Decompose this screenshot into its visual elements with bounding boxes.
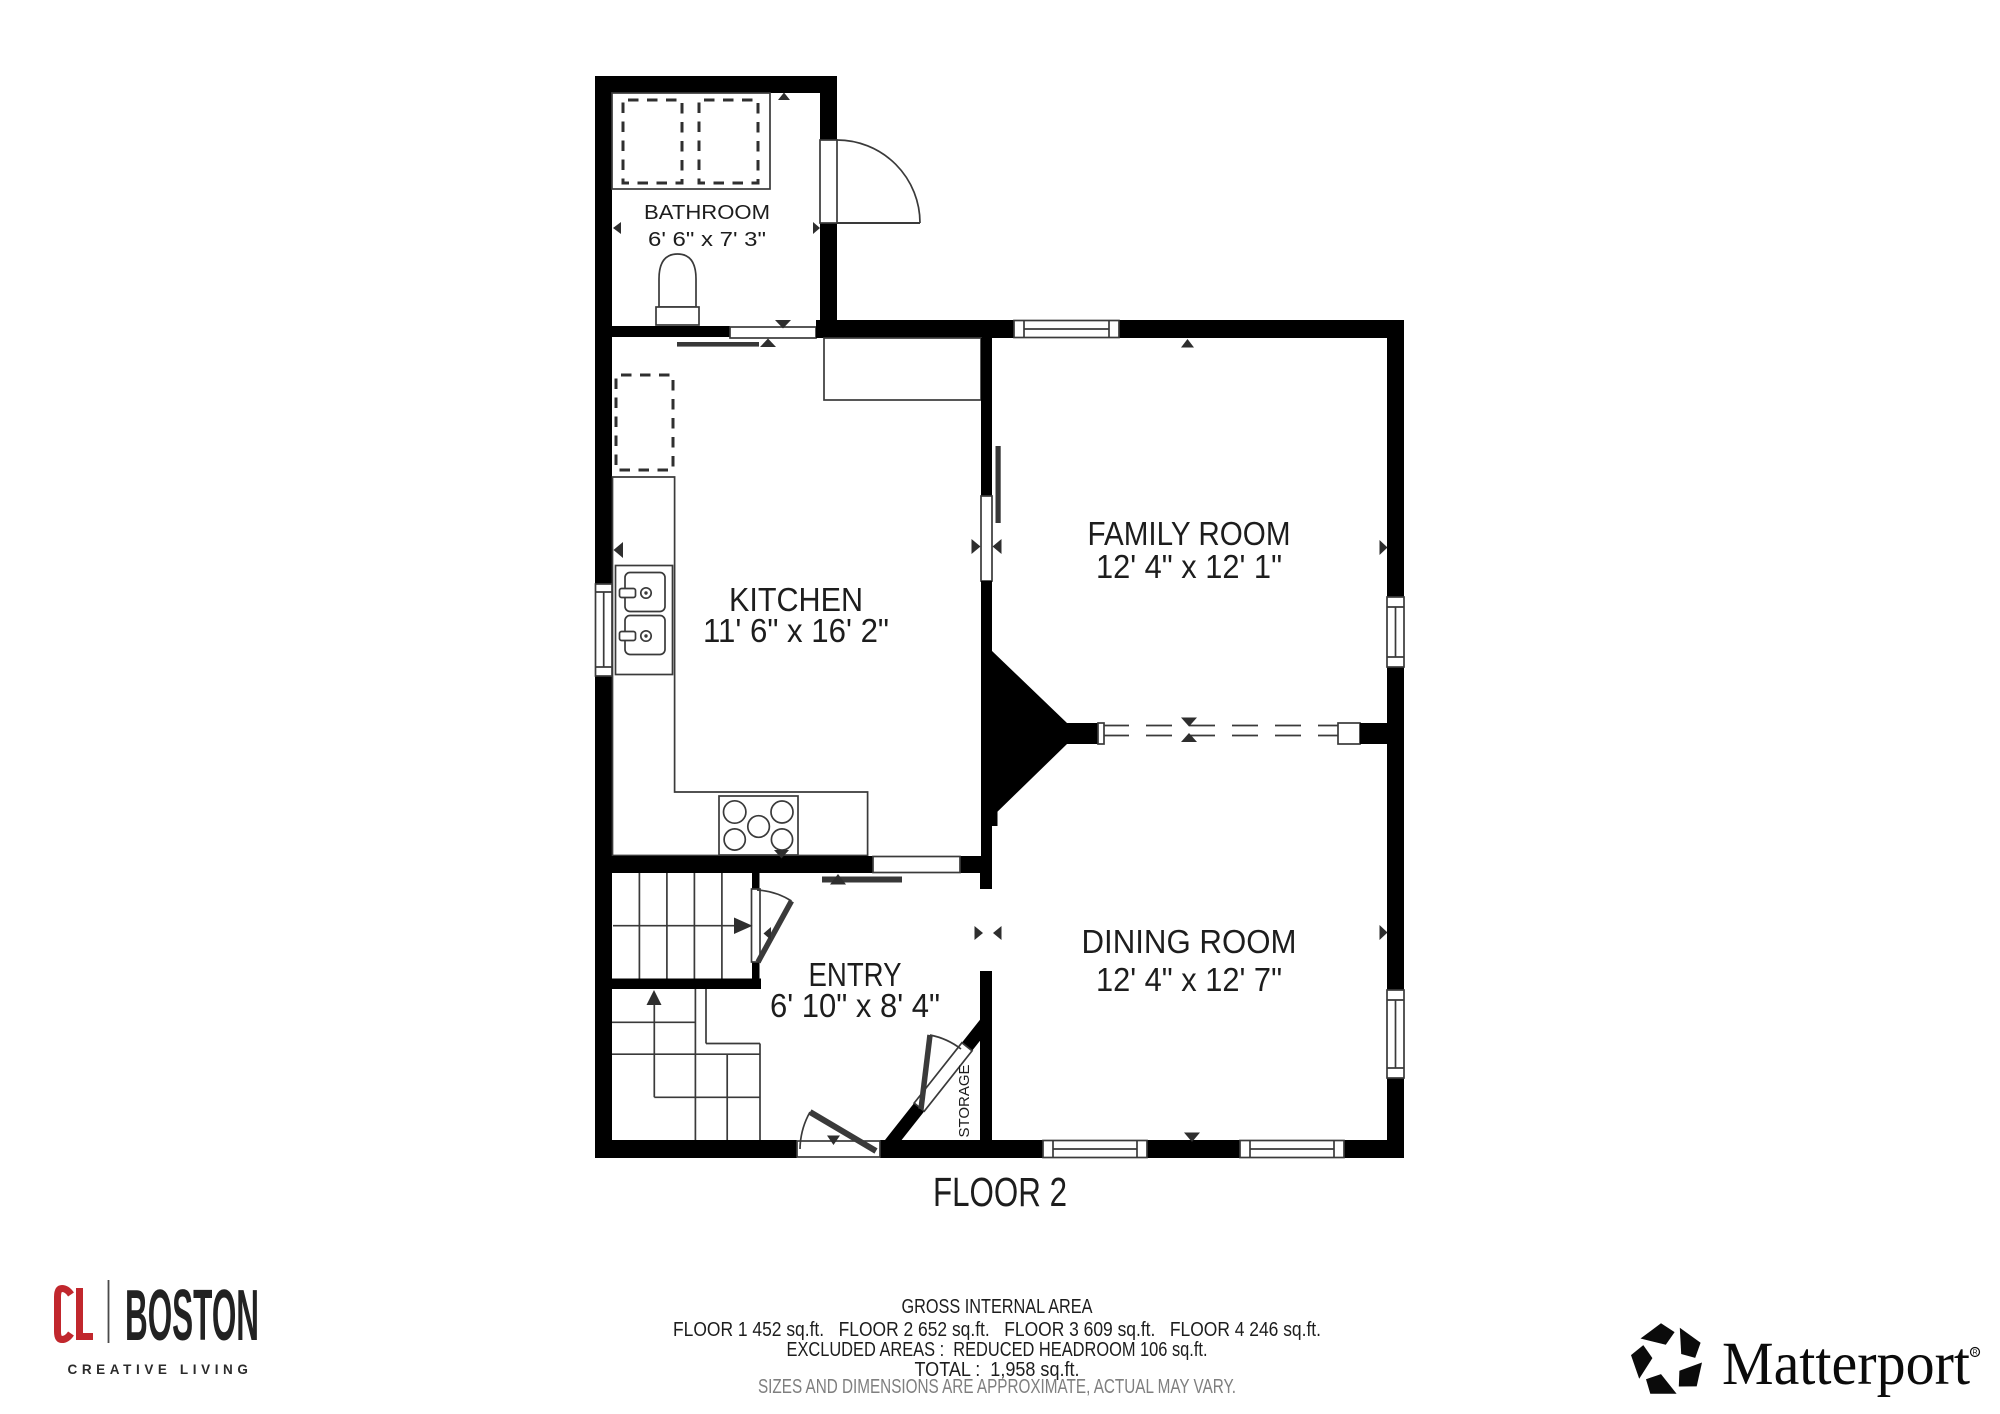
svg-text:6' 10" x 8' 4": 6' 10" x 8' 4"	[770, 987, 940, 1024]
svg-text:FAMILY ROOM: FAMILY ROOM	[1088, 515, 1291, 552]
svg-text:STORAGE: STORAGE	[956, 1064, 973, 1137]
svg-text:CREATIVE LIVING: CREATIVE LIVING	[67, 1362, 252, 1377]
svg-text:BOSTON: BOSTON	[125, 1276, 259, 1356]
svg-text:6' 6" x 7' 3": 6' 6" x 7' 3"	[648, 228, 766, 251]
svg-text:12' 4" x 12' 1": 12' 4" x 12' 1"	[1096, 548, 1282, 585]
svg-text:11' 6" x 16' 2": 11' 6" x 16' 2"	[703, 612, 889, 649]
svg-text:FLOOR 2: FLOOR 2	[933, 1169, 1067, 1215]
svg-text:BATHROOM: BATHROOM	[644, 201, 770, 224]
svg-text:SIZES AND DIMENSIONS ARE APPRO: SIZES AND DIMENSIONS ARE APPROXIMATE, AC…	[758, 1376, 1236, 1398]
svg-text:FLOOR 1 452 sq.ft. FLOOR 2 6: FLOOR 1 452 sq.ft. FLOOR 2 652 sq.ft. FL…	[673, 1319, 1321, 1341]
svg-text:12' 4" x 12' 7": 12' 4" x 12' 7"	[1096, 961, 1282, 998]
svg-text:R: R	[1972, 1350, 1977, 1357]
svg-text:DINING ROOM: DINING ROOM	[1082, 923, 1297, 960]
svg-text:GROSS INTERNAL AREA: GROSS INTERNAL AREA	[902, 1296, 1094, 1318]
svg-text:EXCLUDED AREAS : REDUCED HEAD: EXCLUDED AREAS : REDUCED HEADROOM 106 sq…	[787, 1339, 1208, 1361]
svg-text:Matterport: Matterport	[1722, 1331, 1970, 1398]
